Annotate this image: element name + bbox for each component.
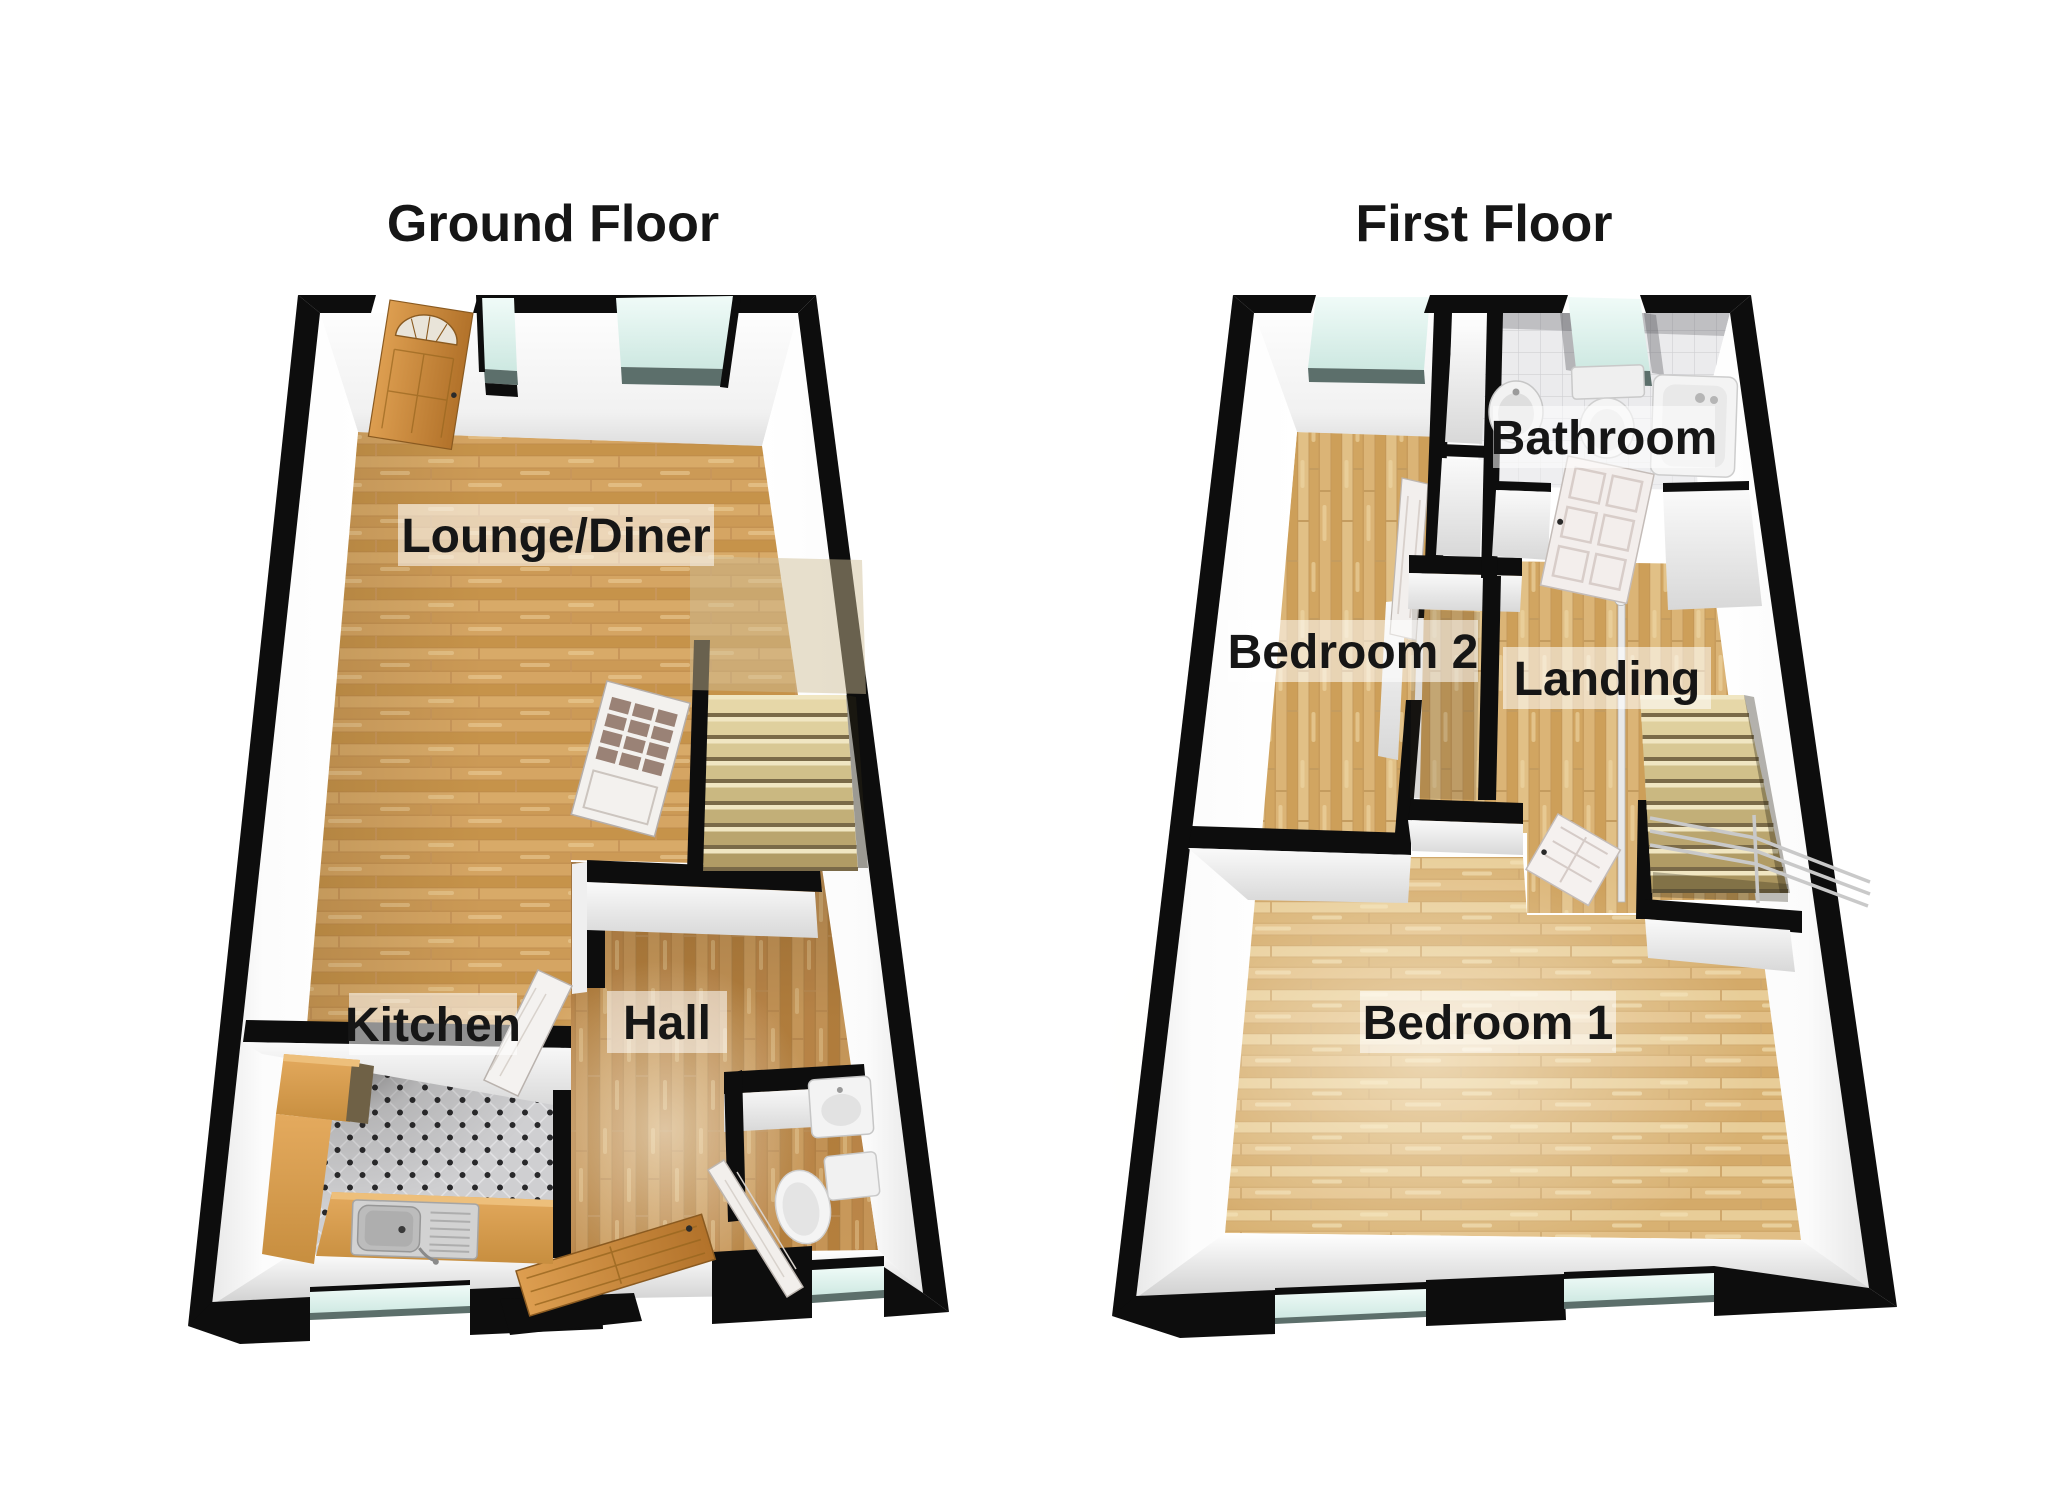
- svg-text:First Floor: First Floor: [1355, 195, 1612, 253]
- svg-text:Bathroom: Bathroom: [1491, 412, 1718, 465]
- svg-text:Landing: Landing: [1514, 653, 1701, 706]
- svg-text:Ground Floor: Ground Floor: [387, 195, 719, 253]
- svg-text:Hall: Hall: [623, 997, 711, 1050]
- svg-text:Lounge/Diner: Lounge/Diner: [401, 510, 710, 563]
- svg-text:Kitchen: Kitchen: [345, 999, 521, 1052]
- svg-text:Bedroom 2: Bedroom 2: [1228, 626, 1479, 679]
- svg-text:Bedroom 1: Bedroom 1: [1363, 997, 1614, 1050]
